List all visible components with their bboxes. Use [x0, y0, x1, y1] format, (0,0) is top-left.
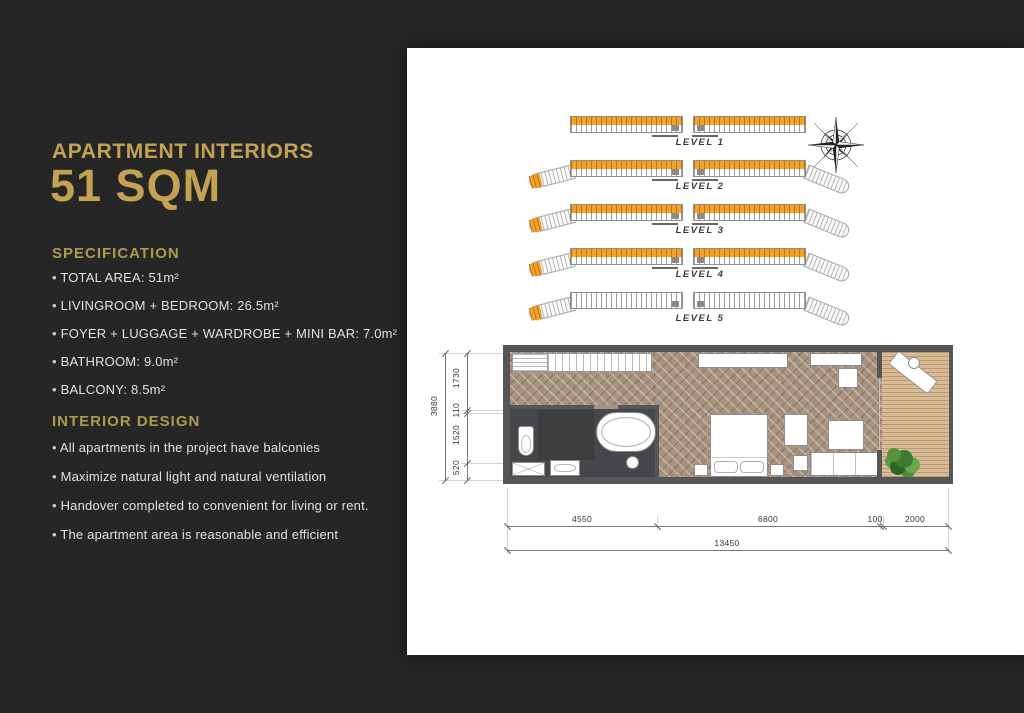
level-label: LEVEL 4: [540, 269, 860, 280]
armchair: [838, 368, 858, 388]
corridor-units: [694, 125, 805, 132]
specification-item: LIVINGROOM + BEDROOM: 26.5m²: [52, 298, 397, 313]
specification-item: FOYER + LUGGAGE + WARDROBE + MINI BAR: 7…: [52, 326, 397, 341]
bathroom-wall: [655, 405, 659, 477]
toilet: [518, 426, 534, 456]
tv-console: [698, 353, 788, 368]
balcony-wall: [877, 450, 882, 477]
extension-line: [439, 480, 503, 481]
pillow: [740, 461, 764, 473]
sofa: [810, 452, 878, 476]
core-block: [697, 169, 704, 175]
dimension-line: [507, 550, 948, 551]
extension-line: [948, 488, 949, 554]
sink: [626, 456, 639, 469]
level-4-plan: LEVEL 4: [540, 248, 860, 282]
dim-segment: 6800: [758, 514, 778, 524]
core-block: [672, 301, 679, 307]
specification-heading: SPECIFICATION: [52, 245, 180, 262]
specification-item: TOTAL AREA: 51m²: [52, 270, 397, 285]
specification-item: BATHROOM: 9.0m²: [52, 354, 397, 369]
side-table: [793, 455, 808, 471]
cabinet: [828, 420, 864, 450]
balcony-wall: [877, 352, 882, 378]
dim-segment: 1730: [451, 368, 461, 388]
building-bar: [693, 248, 806, 265]
core-block: [672, 257, 679, 263]
floorplan-interior: [510, 352, 949, 477]
dim-segment: 520: [451, 460, 461, 475]
corridor-units: [571, 257, 682, 264]
dim-segment: 1520: [451, 425, 461, 445]
corridor-units: [694, 169, 805, 176]
shower-area: [538, 410, 594, 460]
apartment-floorplan: [503, 345, 953, 484]
page-title: 51 SQM: [50, 160, 221, 212]
interior-design-item: All apartments in the project have balco…: [52, 440, 369, 455]
wardrobe: [512, 353, 652, 372]
console-table: [810, 353, 862, 366]
level-5-plan: LEVEL 5: [540, 292, 860, 326]
building-bar: [693, 292, 806, 309]
nightstand: [694, 464, 708, 476]
brochure-page: APARTMENT INTERIORS 51 SQM SPECIFICATION…: [0, 0, 1024, 713]
interior-design-item: The apartment area is reasonable and eff…: [52, 527, 369, 542]
building-bar: [693, 160, 806, 177]
dim-segment: 4550: [572, 514, 592, 524]
specification-list: TOTAL AREA: 51m²LIVINGROOM + BEDROOM: 26…: [52, 270, 397, 410]
core-block: [672, 125, 679, 131]
corridor-units: [571, 213, 682, 220]
building-bar: [693, 116, 806, 133]
level-label: LEVEL 5: [540, 313, 860, 324]
round-stool: [908, 357, 920, 369]
building-bar: [570, 204, 683, 221]
corridor-units: [694, 257, 805, 264]
building-bar: [693, 204, 806, 221]
extension-line: [507, 488, 508, 554]
bed: [710, 414, 768, 477]
bathroom-wall: [510, 405, 658, 409]
corridor-units: [571, 169, 682, 176]
info-panel: APARTMENT INTERIORS 51 SQM SPECIFICATION…: [0, 0, 407, 713]
core-block: [672, 213, 679, 219]
luggage-shelf: [513, 354, 548, 371]
dim-total-height: 3880: [429, 396, 439, 416]
building-bar: [570, 160, 683, 177]
blanket-line: [712, 457, 766, 458]
extension-line: [439, 353, 503, 354]
interior-design-heading: INTERIOR DESIGN: [52, 413, 200, 430]
bathroom-door-opening: [594, 405, 618, 409]
plant-icon: [887, 448, 901, 462]
core-block: [697, 213, 704, 219]
building-bar: [570, 248, 683, 265]
luggage-bench: [784, 414, 808, 446]
bathtub: [596, 412, 656, 452]
interior-design-item: Handover completed to convenient for liv…: [52, 498, 369, 513]
dim-segment: 100: [867, 514, 882, 524]
building-bar: [570, 292, 683, 309]
corridor-units: [694, 213, 805, 220]
level-label: LEVEL 2: [540, 181, 860, 192]
vanity-cabinet: [512, 462, 545, 476]
compass-rose-icon: [805, 114, 867, 176]
level-3-plan: LEVEL 3: [540, 204, 860, 238]
interior-design-list: All apartments in the project have balco…: [52, 440, 369, 556]
core-block: [697, 125, 704, 131]
core-block: [672, 169, 679, 175]
corridor-units: [571, 125, 682, 132]
specification-item: BALCONY: 8.5m²: [52, 382, 397, 397]
corridor-units: [571, 301, 682, 308]
nightstand: [770, 464, 784, 476]
dim-segment: 110: [451, 403, 461, 417]
corridor-units: [694, 301, 805, 308]
floorplan-panel: LEVEL 1 LEVEL 2 LEVEL 3: [407, 48, 1024, 655]
building-bar: [570, 116, 683, 133]
interior-design-item: Maximize natural light and natural venti…: [52, 469, 369, 484]
pillow: [714, 461, 738, 473]
level-label: LEVEL 3: [540, 225, 860, 236]
washbasin-counter: [550, 460, 580, 476]
core-block: [697, 257, 704, 263]
sliding-door: [879, 378, 880, 450]
core-block: [697, 301, 704, 307]
dim-total-width: 13450: [714, 538, 739, 548]
dimension-line: [445, 353, 446, 481]
dim-segment: 2000: [905, 514, 925, 524]
